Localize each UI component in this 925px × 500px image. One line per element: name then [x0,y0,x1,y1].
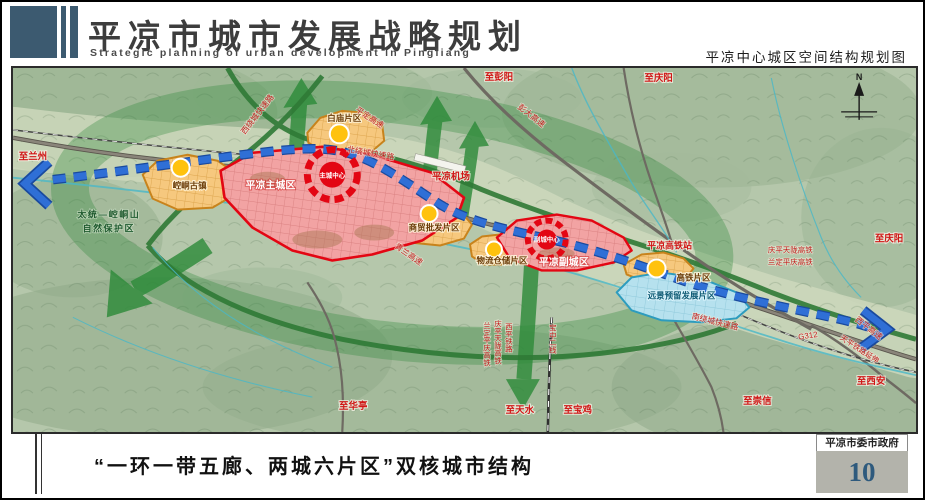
map-frame: N 至兰州太统—崆峒山自然保护区崆峒古镇平凉主城区主城中心白庙片区西绕城快速路平… [11,66,918,434]
map-label: 至西安 [857,375,886,387]
footer-divider [35,434,42,494]
map-label: 西平铁路 [505,322,513,353]
map-label: 宝中二线 [549,322,557,354]
map-label: 至华亭 [339,400,368,412]
planning-sheet: 平凉市城市发展战略规划 Strategic planning of urban … [0,0,925,500]
map-label: 至庆阳 [644,72,672,84]
map-label: 庆平天陇高铁 [494,318,502,365]
map-label: 商贸批发片区 [409,223,460,233]
header-accent-bar [61,6,66,58]
map-label: 至庆阳 [875,233,903,245]
map-label: 副城中心 [534,235,560,244]
compass-north-label: N [856,72,862,82]
map-label: 至宝鸡 [564,404,593,416]
page-number: 10 [816,451,908,493]
map-subtitle: 平凉中心城区空间结构规划图 [706,46,908,66]
page-title-english: Strategic planning of urban development … [90,47,471,59]
map-label: 兰定平庆高铁 [483,320,491,367]
footer-stamp: 平凉市委市政府 10 [816,434,908,493]
map-label: 太统—崆峒山 [77,209,140,220]
map-label: 兰定平庆高铁 [768,256,813,266]
map-label: 至彭阳 [485,71,513,83]
structure-caption: “一环一带五廊、两城六片区”双核城市结构 [94,450,534,479]
header-accent-bar [70,6,78,58]
map-label: 平凉主城区 [245,179,295,192]
map-label: 平凉高铁站 [647,240,692,251]
map-label: 自然保护区 [83,223,135,234]
map-label: 高铁片区 [677,272,711,282]
map-label: 庆平天陇高铁 [768,244,813,254]
header-logo-block [10,6,57,58]
map-label: 物流仓储片区 [476,255,527,265]
map-label: 至天水 [506,404,535,416]
map-label: 主城中心 [319,171,345,180]
map-label: 至崇信 [743,395,772,407]
agency-label: 平凉市委市政府 [816,434,908,451]
map-label: 平凉副城区 [539,255,589,268]
structure-map: N 至兰州太统—崆峒山自然保护区崆峒古镇平凉主城区主城中心白庙片区西绕城快速路平… [13,68,916,432]
map-label: 崆峒古镇 [173,181,207,191]
map-label: 远景预留发展片区 [648,290,716,300]
map-label: 平凉机场 [432,171,470,183]
map-label: 至兰州 [19,151,47,163]
